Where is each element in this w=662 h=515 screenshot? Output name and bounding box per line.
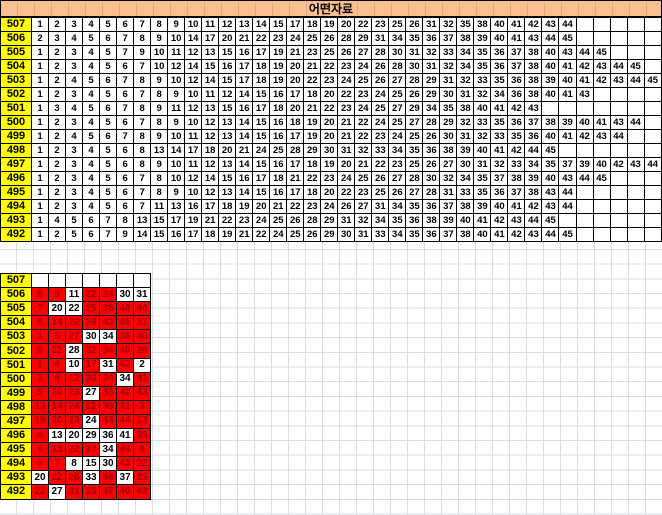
number-cell[interactable]: 17 [202,200,219,214]
number-cell[interactable]: 29 [440,116,457,130]
highlighted-number-cell[interactable]: 42 [134,485,151,499]
number-cell[interactable]: 34 [100,443,117,457]
highlighted-number-cell[interactable]: 20 [49,414,66,428]
number-cell[interactable]: 38 [457,102,474,116]
number-cell[interactable]: 36 [491,60,508,74]
number-cell[interactable]: 1 [32,18,49,32]
number-cell[interactable]: 42 [576,130,593,144]
empty-cell[interactable] [644,144,661,158]
number-cell[interactable]: 20 [321,130,338,144]
number-cell[interactable]: 28 [423,186,440,200]
empty-cell[interactable] [627,200,644,214]
number-cell[interactable]: 17 [287,186,304,200]
number-cell[interactable]: 29 [355,32,372,46]
number-cell[interactable]: 42 [525,18,542,32]
empty-cell[interactable] [610,186,627,200]
empty-cell[interactable] [627,214,644,228]
empty-cell[interactable] [610,102,627,116]
number-cell[interactable]: 15 [219,102,236,116]
highlighted-number-cell[interactable]: 6 [32,288,49,302]
empty-cell[interactable] [644,32,661,46]
number-cell[interactable]: 14 [202,172,219,186]
number-cell[interactable]: 3 [66,144,83,158]
number-cell[interactable]: 31 [338,144,355,158]
number-cell[interactable]: 36 [423,144,440,158]
number-cell[interactable]: 35 [406,200,423,214]
number-cell[interactable]: 38 [542,116,559,130]
number-cell[interactable]: 16 [168,228,185,242]
highlighted-number-cell[interactable]: 5 [49,330,66,344]
number-cell[interactable]: 22 [355,130,372,144]
number-cell[interactable]: 9 [151,158,168,172]
number-cell[interactable]: 5 [100,60,117,74]
number-cell[interactable]: 40 [542,88,559,102]
number-cell[interactable]: 44 [542,32,559,46]
number-cell[interactable]: 16 [185,200,202,214]
highlighted-number-cell[interactable]: 34 [100,344,117,358]
number-cell[interactable]: 12 [185,46,202,60]
number-cell[interactable]: 22 [321,60,338,74]
highlighted-number-cell[interactable]: 38 [100,302,117,316]
highlighted-number-cell[interactable]: 43 [100,414,117,428]
number-cell[interactable]: 41 [117,429,134,443]
empty-cell[interactable] [644,186,661,200]
highlighted-number-cell[interactable]: 24 [66,400,83,414]
number-cell[interactable]: 43 [542,186,559,200]
number-cell[interactable]: 21 [202,214,219,228]
number-cell[interactable]: 18 [270,102,287,116]
number-cell[interactable]: 8 [134,102,151,116]
number-cell[interactable]: 22 [338,88,355,102]
number-cell[interactable]: 38 [457,228,474,242]
number-cell[interactable]: 7 [134,116,151,130]
number-cell[interactable]: 36 [100,429,117,443]
highlighted-number-cell[interactable]: 13 [134,414,151,428]
number-cell[interactable]: 2 [49,172,66,186]
number-cell[interactable]: 40 [559,74,576,88]
number-cell[interactable]: 8 [151,18,168,32]
number-cell[interactable]: 35 [406,32,423,46]
number-cell[interactable]: 38 [525,88,542,102]
number-cell[interactable]: 16 [219,60,236,74]
number-cell[interactable]: 9 [151,102,168,116]
number-cell[interactable]: 23 [304,200,321,214]
number-cell[interactable]: 34 [423,102,440,116]
highlighted-number-cell[interactable]: 22 [49,344,66,358]
number-cell[interactable]: 32 [440,60,457,74]
number-cell[interactable]: 21 [236,228,253,242]
empty-cell[interactable] [593,32,610,46]
number-cell[interactable]: 38 [423,214,440,228]
number-cell[interactable]: 11 [168,46,185,60]
number-cell[interactable]: 7 [134,186,151,200]
number-cell[interactable]: 35 [440,102,457,116]
number-cell[interactable]: 38 [525,186,542,200]
number-cell[interactable]: 34 [100,330,117,344]
empty-cell[interactable] [576,144,593,158]
number-cell[interactable]: 25 [355,74,372,88]
number-cell[interactable]: 8 [134,158,151,172]
number-cell[interactable]: 20 [287,60,304,74]
highlighted-number-cell[interactable]: 1 [32,358,49,372]
number-cell[interactable]: 35 [474,60,491,74]
number-cell[interactable]: 13 [151,144,168,158]
number-cell[interactable]: 38 [525,46,542,60]
number-cell[interactable]: 17 [287,130,304,144]
highlighted-number-cell[interactable]: 26 [66,471,83,485]
number-cell[interactable]: 4 [66,74,83,88]
empty-cell[interactable] [627,228,644,242]
empty-cell[interactable] [593,186,610,200]
number-cell[interactable]: 45 [593,46,610,60]
number-cell[interactable]: 5 [66,228,83,242]
number-cell[interactable]: 20 [321,88,338,102]
number-cell[interactable]: 30 [389,46,406,60]
row-label[interactable]: 501 [1,102,32,116]
number-cell[interactable]: 24 [253,144,270,158]
number-cell[interactable]: 3 [66,116,83,130]
empty-cell[interactable] [593,214,610,228]
number-cell[interactable]: 18 [253,60,270,74]
number-cell[interactable]: 17 [185,228,202,242]
number-cell[interactable]: 8 [134,32,151,46]
number-cell[interactable]: 30 [440,130,457,144]
number-cell[interactable]: 5 [100,172,117,186]
number-cell[interactable]: 18 [270,172,287,186]
number-cell[interactable]: 24 [338,172,355,186]
empty-cell[interactable] [644,228,661,242]
number-cell[interactable]: 26 [372,74,389,88]
number-cell[interactable]: 3 [66,18,83,32]
number-cell[interactable]: 2 [49,186,66,200]
number-cell[interactable]: 5 [100,116,117,130]
empty-cell[interactable] [576,102,593,116]
empty-cell[interactable] [627,18,644,32]
highlighted-number-cell[interactable]: 22 [66,443,83,457]
number-cell[interactable]: 4 [83,186,100,200]
number-cell[interactable]: 38 [440,144,457,158]
number-cell[interactable]: 11 [202,18,219,32]
number-cell[interactable]: 45 [559,32,576,46]
number-cell[interactable]: 1 [32,214,49,228]
highlighted-number-cell[interactable]: 43 [134,386,151,400]
number-cell[interactable]: 41 [508,200,525,214]
number-cell[interactable]: 15 [219,46,236,60]
number-cell[interactable]: 1 [32,130,49,144]
number-cell[interactable]: 41 [576,74,593,88]
number-cell[interactable]: 26 [406,88,423,102]
number-cell[interactable]: 23 [389,158,406,172]
number-cell[interactable]: 13 [219,116,236,130]
number-cell[interactable]: 7 [117,102,134,116]
number-cell[interactable]: 34 [389,228,406,242]
highlighted-number-cell[interactable]: 26 [83,316,100,330]
number-cell[interactable]: 37 [508,60,525,74]
number-cell[interactable]: 21 [287,46,304,60]
number-cell[interactable]: 8 [134,130,151,144]
number-cell[interactable]: 7 [117,32,134,46]
number-cell[interactable]: 9 [151,74,168,88]
number-cell[interactable]: 35 [474,46,491,60]
number-cell[interactable]: 45 [593,172,610,186]
row-label[interactable]: 497 [1,158,32,172]
number-cell[interactable]: 39 [474,200,491,214]
number-cell[interactable]: 41 [474,214,491,228]
highlighted-number-cell[interactable]: 40 [117,302,134,316]
highlighted-number-cell[interactable]: 44 [117,443,134,457]
number-cell[interactable]: 3 [49,102,66,116]
row-label[interactable]: 506 [1,32,32,46]
number-cell[interactable]: 6 [117,116,134,130]
number-cell[interactable]: 22 [355,116,372,130]
number-cell[interactable]: 34 [389,200,406,214]
number-cell[interactable]: 3 [66,88,83,102]
number-cell[interactable]: 24 [389,130,406,144]
empty-cell[interactable] [610,172,627,186]
number-cell[interactable]: 2 [32,32,49,46]
number-cell[interactable]: 27 [355,200,372,214]
number-cell[interactable]: 17 [287,18,304,32]
number-cell[interactable]: 1 [32,116,49,130]
empty-cell[interactable] [559,102,576,116]
number-cell[interactable]: 37 [508,46,525,60]
number-cell[interactable]: 1 [32,102,49,116]
number-cell[interactable]: 17 [236,74,253,88]
number-cell[interactable]: 2 [49,46,66,60]
number-cell[interactable]: 16 [270,116,287,130]
number-cell[interactable]: 31 [372,32,389,46]
number-cell[interactable]: 34 [372,214,389,228]
number-cell[interactable]: 7 [134,88,151,102]
number-cell[interactable]: 17 [287,158,304,172]
number-cell[interactable]: 17 [253,172,270,186]
number-cell[interactable]: 11 [66,288,83,302]
number-cell[interactable]: 22 [304,74,321,88]
number-cell[interactable]: 43 [610,74,627,88]
number-cell[interactable]: 15 [253,130,270,144]
number-cell[interactable]: 31 [457,88,474,102]
empty-cell[interactable] [610,46,627,60]
number-cell[interactable]: 30 [83,330,100,344]
row-label[interactable]: 497 [1,414,32,428]
number-cell[interactable]: 22 [355,18,372,32]
row-label[interactable]: 492 [1,228,32,242]
number-cell[interactable]: 5 [100,158,117,172]
number-cell[interactable]: 23 [321,172,338,186]
highlighted-number-cell[interactable]: 4 [32,429,49,443]
number-cell[interactable]: 21 [236,144,253,158]
empty-cell[interactable] [644,130,661,144]
number-cell[interactable]: 37 [440,200,457,214]
number-cell[interactable]: 35 [508,130,525,144]
number-cell[interactable]: 19 [270,60,287,74]
number-cell[interactable]: 30 [338,228,355,242]
number-cell[interactable]: 20 [219,144,236,158]
number-cell[interactable]: 35 [474,186,491,200]
number-cell[interactable]: 4 [49,214,66,228]
number-cell[interactable]: 10 [168,32,185,46]
number-cell[interactable]: 2 [49,116,66,130]
number-cell[interactable]: 9 [134,46,151,60]
number-cell[interactable]: 5 [100,46,117,60]
number-cell[interactable]: 14 [185,60,202,74]
number-cell[interactable]: 23 [321,74,338,88]
number-cell[interactable]: 38 [457,32,474,46]
number-cell[interactable]: 42 [610,158,627,172]
highlighted-number-cell[interactable]: 6 [134,443,151,457]
number-cell[interactable]: 16 [236,102,253,116]
number-cell[interactable]: 15 [219,172,236,186]
number-cell[interactable]: 15 [253,116,270,130]
highlighted-number-cell[interactable]: 14 [49,316,66,330]
number-cell[interactable]: 15 [270,18,287,32]
empty-cell[interactable] [627,46,644,60]
empty-cell[interactable] [593,144,610,158]
number-cell[interactable]: 4 [66,130,83,144]
number-cell[interactable]: 10 [151,60,168,74]
highlighted-number-cell[interactable]: 5 [32,457,49,471]
number-cell[interactable]: 37 [117,471,134,485]
highlighted-number-cell[interactable]: 24 [100,372,117,386]
number-cell[interactable]: 25 [270,144,287,158]
number-cell[interactable]: 26 [389,186,406,200]
number-cell[interactable]: 44 [610,130,627,144]
number-cell[interactable]: 8 [151,116,168,130]
number-cell[interactable]: 36 [423,32,440,46]
number-cell[interactable]: 34 [457,172,474,186]
number-cell[interactable]: 13 [202,46,219,60]
number-cell[interactable]: 25 [304,32,321,46]
number-cell[interactable]: 43 [593,60,610,74]
number-cell[interactable]: 22 [219,214,236,228]
number-cell[interactable]: 22 [372,158,389,172]
number-cell[interactable]: 29 [304,144,321,158]
highlighted-number-cell[interactable]: 1 [32,330,49,344]
number-cell[interactable]: 35 [491,74,508,88]
number-cell[interactable]: 23 [270,32,287,46]
number-cell[interactable]: 16 [236,172,253,186]
number-cell[interactable]: 32 [457,74,474,88]
number-cell[interactable]: 21 [338,116,355,130]
number-cell[interactable]: 18 [304,18,321,32]
number-cell[interactable]: 14 [202,74,219,88]
number-cell[interactable]: 26 [423,158,440,172]
number-cell[interactable]: 31 [100,358,117,372]
number-cell[interactable]: 45 [542,214,559,228]
number-cell[interactable]: 40 [491,18,508,32]
highlighted-number-cell[interactable]: 31 [66,485,83,499]
number-cell[interactable]: 13 [236,18,253,32]
empty-cell[interactable] [644,116,661,130]
number-cell[interactable]: 9 [168,18,185,32]
number-cell[interactable]: 24 [270,228,287,242]
number-cell[interactable]: 17 [202,32,219,46]
empty-cell[interactable] [83,274,100,288]
number-cell[interactable]: 40 [542,130,559,144]
number-cell[interactable]: 39 [474,32,491,46]
number-cell[interactable]: 10 [151,46,168,60]
number-cell[interactable]: 29 [321,228,338,242]
number-cell[interactable]: 27 [406,116,423,130]
row-label[interactable]: 500 [1,372,32,386]
empty-cell[interactable] [559,144,576,158]
number-cell[interactable]: 2 [49,60,66,74]
empty-cell[interactable] [593,102,610,116]
number-cell[interactable]: 44 [542,228,559,242]
highlighted-number-cell[interactable]: 22 [66,316,83,330]
highlighted-number-cell[interactable]: 14 [49,400,66,414]
number-cell[interactable]: 26 [423,130,440,144]
number-cell[interactable]: 28 [338,32,355,46]
row-label[interactable]: 507 [1,274,32,288]
number-cell[interactable]: 28 [406,172,423,186]
number-cell[interactable]: 41 [508,32,525,46]
number-cell[interactable]: 30 [423,172,440,186]
number-cell[interactable]: 28 [389,60,406,74]
number-cell[interactable]: 30 [321,144,338,158]
number-cell[interactable]: 24 [253,214,270,228]
number-cell[interactable]: 33 [491,130,508,144]
empty-cell[interactable] [66,274,83,288]
number-cell[interactable]: 5 [83,32,100,46]
number-cell[interactable]: 11 [202,88,219,102]
number-cell[interactable]: 14 [236,158,253,172]
number-cell[interactable]: 26 [304,228,321,242]
number-cell[interactable]: 17 [185,144,202,158]
number-cell[interactable]: 6 [117,186,134,200]
number-cell[interactable]: 10 [168,130,185,144]
number-cell[interactable]: 43 [525,102,542,116]
number-cell[interactable]: 29 [423,74,440,88]
highlighted-number-cell[interactable]: 22 [134,457,151,471]
highlighted-number-cell[interactable]: 6 [32,344,49,358]
number-cell[interactable]: 5 [66,214,83,228]
number-cell[interactable]: 26 [372,60,389,74]
number-cell[interactable]: 41 [559,60,576,74]
number-cell[interactable]: 45 [644,74,661,88]
number-cell[interactable]: 3 [66,186,83,200]
number-cell[interactable]: 45 [559,228,576,242]
number-cell[interactable]: 19 [270,74,287,88]
number-cell[interactable]: 10 [168,172,185,186]
number-cell[interactable]: 41 [491,144,508,158]
number-cell[interactable]: 6 [117,144,134,158]
number-cell[interactable]: 9 [168,88,185,102]
empty-cell[interactable] [644,102,661,116]
highlighted-number-cell[interactable]: 40 [134,330,151,344]
number-cell[interactable]: 3 [66,158,83,172]
highlighted-number-cell[interactable]: 13 [49,443,66,457]
number-cell[interactable]: 24 [321,200,338,214]
highlighted-number-cell[interactable]: 25 [83,302,100,316]
number-cell[interactable]: 32 [457,116,474,130]
number-cell[interactable]: 25 [406,130,423,144]
number-cell[interactable]: 14 [236,88,253,102]
number-cell[interactable]: 20 [338,158,355,172]
number-cell[interactable]: 2 [49,130,66,144]
number-cell[interactable]: 21 [304,102,321,116]
number-cell[interactable]: 34 [457,46,474,60]
highlighted-number-cell[interactable]: 6 [32,316,49,330]
row-label[interactable]: 493 [1,471,32,485]
number-cell[interactable]: 9 [168,186,185,200]
highlighted-number-cell[interactable]: 31 [134,316,151,330]
highlighted-number-cell[interactable]: 3 [134,400,151,414]
number-cell[interactable]: 14 [168,144,185,158]
empty-cell[interactable] [627,88,644,102]
number-cell[interactable]: 25 [406,158,423,172]
number-cell[interactable]: 8 [117,214,134,228]
